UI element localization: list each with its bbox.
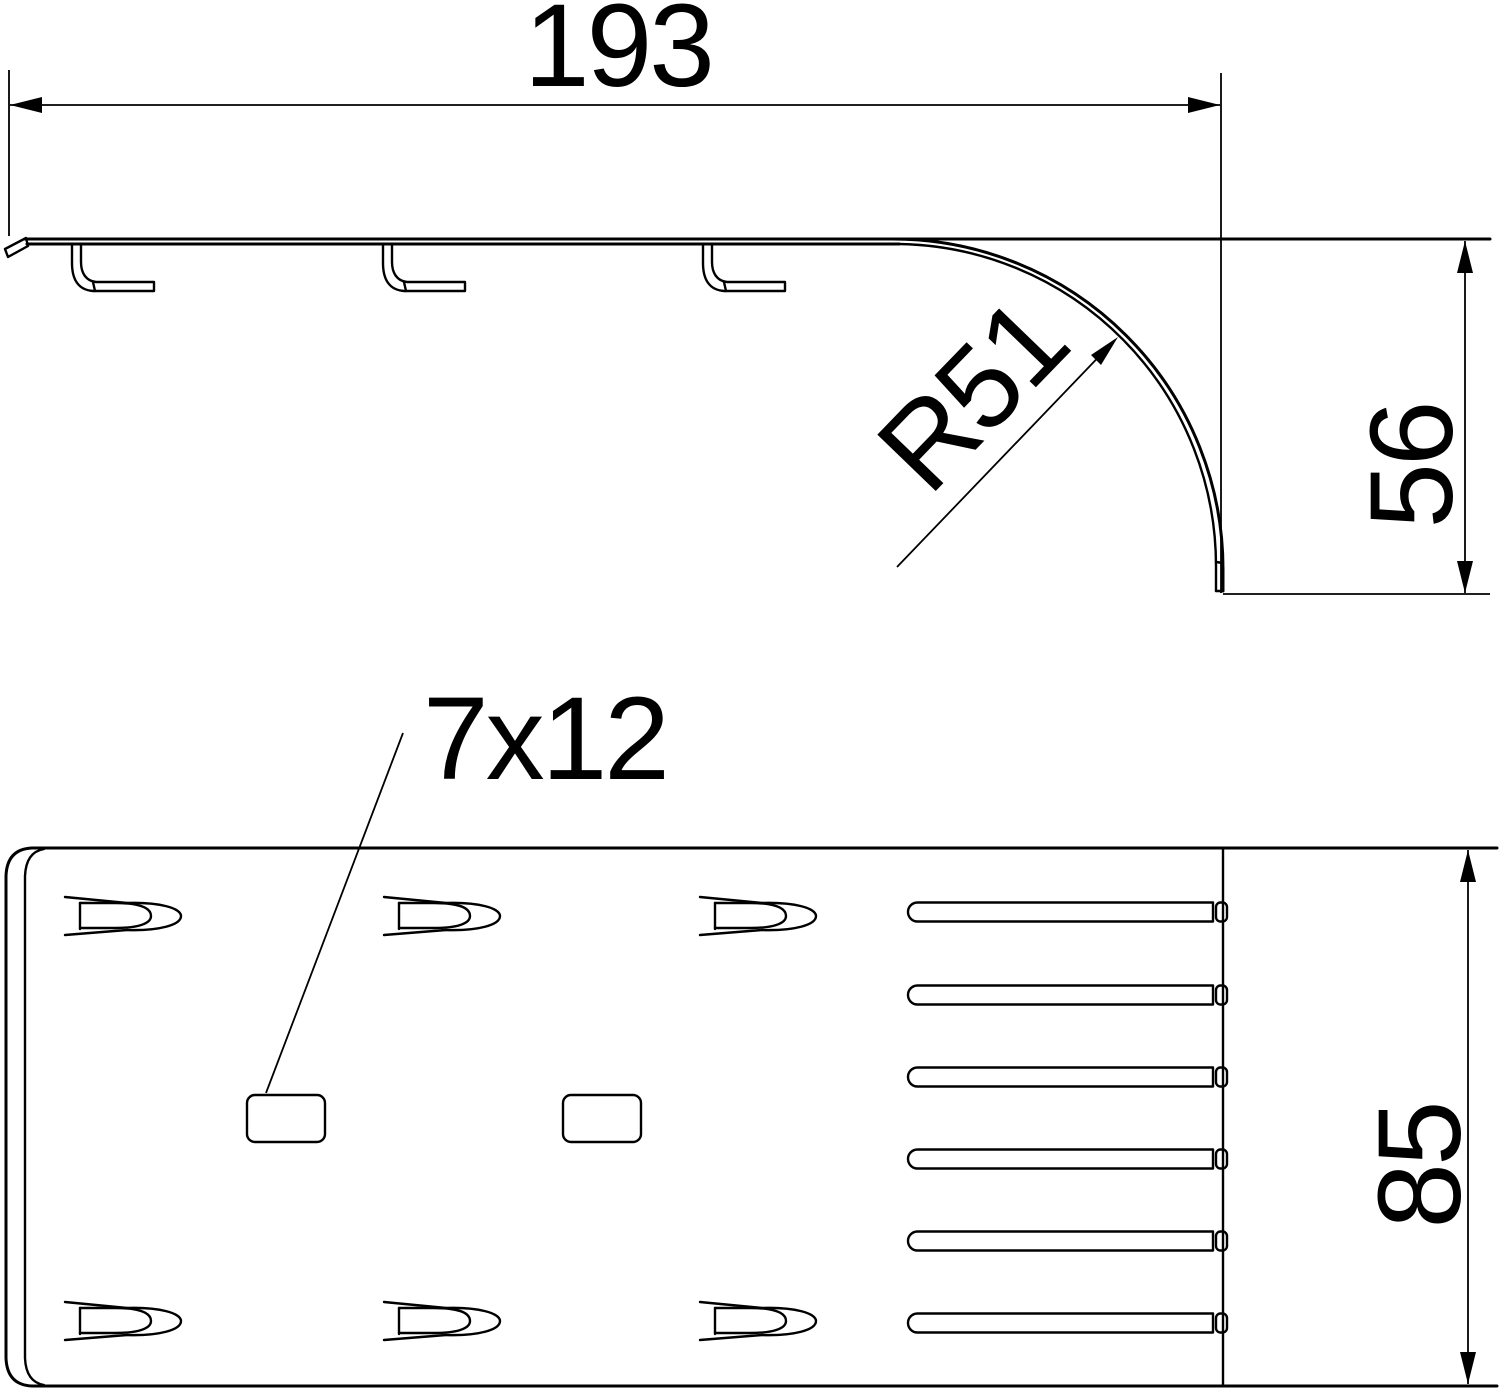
technical-drawing-sheet: 193 R51 56	[0, 0, 1500, 1389]
slot-3	[908, 1068, 1227, 1087]
tab-top-2	[384, 897, 500, 935]
slot-4	[908, 1150, 1227, 1169]
dim-height-arrow-top	[1457, 241, 1473, 273]
tab-bottom-3	[700, 1302, 816, 1340]
radius-label: R51	[853, 275, 1092, 516]
slot-6	[908, 1314, 1227, 1333]
curve-end-tick	[1216, 562, 1223, 563]
dim-radius-r51: R51	[853, 275, 1118, 567]
dim-height-56: 56	[1223, 241, 1490, 594]
dim-height-arrow-bottom	[1457, 561, 1473, 593]
dim-width-arrow-bottom	[1460, 1352, 1476, 1384]
left-hem-fold-line	[25, 849, 44, 1385]
dim-width-arrow-top	[1460, 850, 1476, 882]
hook-3	[703, 244, 785, 291]
tab-top-3	[700, 897, 816, 935]
rect-hole-2	[563, 1095, 641, 1142]
left-lip	[5, 238, 28, 257]
dim-slot-size-7x12: 7x12	[266, 673, 667, 1093]
rect-hole-1	[247, 1095, 325, 1142]
tab-top-1	[65, 897, 181, 935]
dim-width-85: 85	[1354, 850, 1486, 1384]
tab-bottom-1	[65, 1302, 181, 1340]
tab-bottom-2	[384, 1302, 500, 1340]
dim-length-arrow-left	[10, 97, 42, 113]
dim-width-label: 85	[1354, 1103, 1486, 1228]
slot-size-leader-line	[266, 733, 403, 1093]
slot-size-label: 7x12	[423, 673, 667, 805]
hook-2	[383, 244, 465, 291]
plan-view: 7x12 85	[6, 673, 1497, 1386]
hook-1	[72, 244, 154, 291]
side-profile-view: 193 R51 56	[5, 0, 1490, 594]
dim-length-arrow-right	[1188, 97, 1220, 113]
slot-2	[908, 986, 1227, 1005]
dim-length-label: 193	[524, 0, 712, 112]
slot-5	[908, 1232, 1227, 1251]
dim-length-193: 193	[9, 0, 1221, 593]
drawing-canvas: 193 R51 56	[0, 0, 1500, 1389]
dim-height-label: 56	[1346, 403, 1478, 528]
slot-1	[908, 903, 1227, 922]
